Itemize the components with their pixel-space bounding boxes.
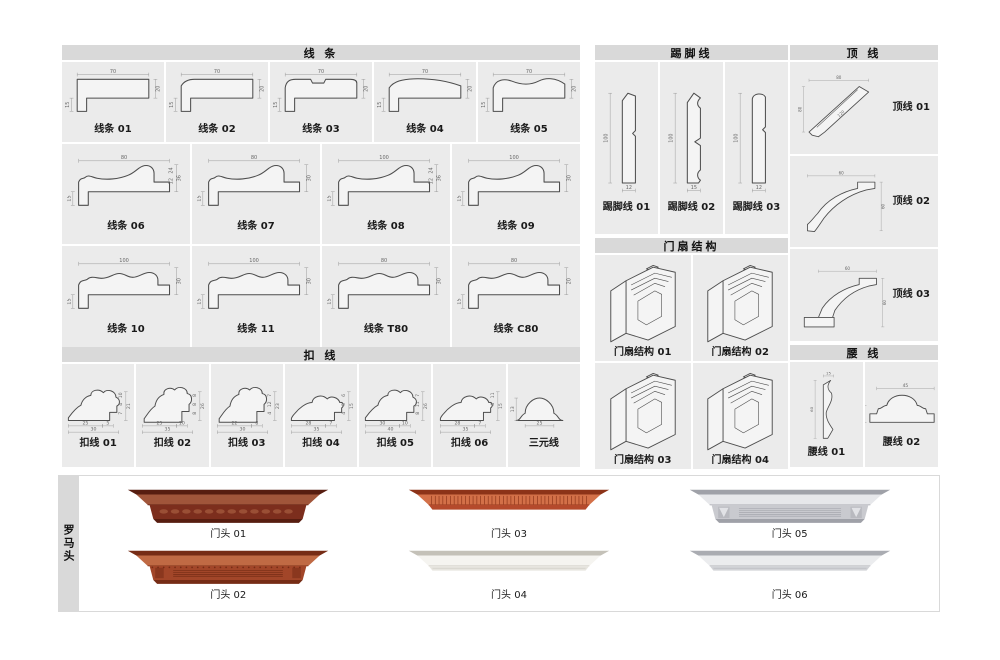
profile-drawing: 1003015 bbox=[197, 258, 315, 322]
door-head-photo bbox=[686, 485, 894, 528]
profile-label: 踢脚线 02 bbox=[668, 202, 715, 214]
bead-panel-3: 22830237124扣线 03 bbox=[211, 364, 283, 467]
svg-text:25: 25 bbox=[83, 420, 89, 426]
svg-text:15: 15 bbox=[497, 403, 503, 409]
svg-text:25: 25 bbox=[157, 420, 163, 426]
svg-text:7: 7 bbox=[118, 411, 124, 414]
svg-text:15: 15 bbox=[327, 195, 332, 201]
bead-panel-2: 25103526888扣线 02 bbox=[136, 364, 208, 467]
svg-text:8: 8 bbox=[255, 420, 258, 426]
svg-text:100: 100 bbox=[379, 155, 389, 161]
svg-text:70: 70 bbox=[214, 69, 220, 75]
section-title-skirting: 踢脚线 bbox=[595, 45, 788, 60]
profile-drawing: 10036152412 bbox=[327, 155, 445, 219]
door-head-label: 门头 02 bbox=[210, 590, 246, 602]
profile-label: 线条 10 bbox=[107, 324, 144, 336]
profile-drawing: 2873515654 bbox=[286, 381, 356, 437]
profile-drawing: 10012 bbox=[728, 82, 786, 200]
svg-text:20: 20 bbox=[567, 278, 573, 284]
svg-text:70: 70 bbox=[422, 69, 428, 75]
profile-label: 线条 08 bbox=[367, 221, 404, 233]
svg-text:30: 30 bbox=[91, 426, 97, 432]
svg-text:13: 13 bbox=[510, 406, 516, 412]
profile-drawing: 2873515114 bbox=[435, 381, 505, 437]
svg-text:60: 60 bbox=[808, 407, 813, 412]
door-head-figure-门头-06: 门头 06 bbox=[686, 546, 894, 602]
door-structure-drawing bbox=[701, 365, 779, 453]
svg-text:15: 15 bbox=[457, 298, 462, 304]
profile-label: 线条 C80 bbox=[494, 324, 539, 336]
profile-drawing: 1560 bbox=[801, 370, 853, 444]
svg-text:30: 30 bbox=[437, 278, 443, 284]
profile-label: 扣线 06 bbox=[451, 438, 488, 450]
svg-text:15: 15 bbox=[67, 298, 72, 304]
svg-text:35: 35 bbox=[165, 426, 171, 432]
section-waist: 腰 线 1560腰线 014520腰线 02 bbox=[790, 345, 938, 467]
profile-label: 线条 07 bbox=[237, 221, 274, 233]
skirting-panel-3: 10012踢脚线 03 bbox=[725, 62, 788, 234]
svg-text:45: 45 bbox=[902, 383, 908, 389]
svg-text:100: 100 bbox=[668, 134, 674, 143]
door-structure-drawing bbox=[701, 257, 779, 345]
profile-drawing: 10015 bbox=[663, 82, 721, 200]
svg-text:36: 36 bbox=[437, 175, 443, 181]
moulding-row-2: 8036152412线条 06803015线条 0710036152412线条 … bbox=[62, 144, 580, 244]
profile-label: 顶线 03 bbox=[893, 289, 930, 301]
section-roman-head: 罗马头 门头 01门头 02门头 03门头 04门头 05门头 06 bbox=[58, 475, 940, 612]
profile-drawing: 1003015 bbox=[457, 155, 575, 219]
profile-label: 线条 03 bbox=[302, 124, 339, 136]
svg-text:100: 100 bbox=[119, 258, 129, 264]
svg-text:60: 60 bbox=[839, 170, 845, 175]
moulding-panel-线条-T80: 803015线条 T80 bbox=[322, 246, 450, 348]
moulding-panel-线条-10: 1003015线条 10 bbox=[62, 246, 190, 348]
profile-drawing: 702015 bbox=[168, 68, 266, 123]
bead-panel-6: 2873515114扣线 06 bbox=[433, 364, 505, 467]
svg-text:7: 7 bbox=[478, 420, 481, 426]
waist-panel-2: 4520腰线 02 bbox=[865, 362, 938, 467]
profile-label: 腰线 02 bbox=[883, 437, 920, 449]
profile-drawing: 702015 bbox=[376, 68, 474, 123]
profile-label: 线条 01 bbox=[94, 124, 131, 136]
profile-label: 顶线 01 bbox=[893, 102, 930, 114]
crown-panel-2: 6060顶线 02 bbox=[790, 156, 938, 248]
svg-text:35: 35 bbox=[462, 426, 468, 432]
section-skirting: 踢脚线 10012踢脚线 0110015踢脚线 0210012踢脚线 03 bbox=[595, 45, 788, 234]
profile-drawing: 1325 bbox=[509, 381, 579, 437]
door-structure-grid: 门扇结构 01门扇结构 02门扇结构 03门扇结构 04 bbox=[595, 255, 788, 469]
svg-text:4: 4 bbox=[266, 411, 272, 414]
svg-text:12: 12 bbox=[755, 185, 761, 191]
door-head-figure-门头-03: 门头 03 bbox=[405, 485, 613, 541]
svg-text:10: 10 bbox=[402, 420, 408, 426]
svg-text:60: 60 bbox=[845, 266, 851, 271]
roman-head-content: 门头 01门头 02门头 03门头 04门头 05门头 06 bbox=[78, 475, 940, 612]
profile-drawing: 10012 bbox=[598, 82, 656, 200]
svg-text:15: 15 bbox=[197, 195, 202, 201]
door-head-label: 门头 04 bbox=[491, 590, 527, 602]
svg-text:28: 28 bbox=[454, 420, 460, 426]
profile-drawing: 702015 bbox=[272, 68, 370, 123]
svg-text:8: 8 bbox=[192, 394, 198, 397]
svg-text:10: 10 bbox=[118, 392, 124, 398]
profile-label: 线条 06 bbox=[107, 221, 144, 233]
bead-line-row: 25530211047扣线 0125103526888扣线 0222830237… bbox=[62, 364, 580, 467]
svg-text:15: 15 bbox=[327, 298, 332, 304]
svg-text:15: 15 bbox=[481, 101, 487, 107]
svg-text:80: 80 bbox=[251, 155, 257, 161]
door-structure-drawing bbox=[604, 257, 682, 345]
svg-text:80: 80 bbox=[836, 75, 842, 80]
svg-text:5: 5 bbox=[341, 402, 347, 405]
svg-text:80: 80 bbox=[511, 258, 517, 264]
svg-text:40: 40 bbox=[388, 426, 394, 432]
door-head-label: 门头 06 bbox=[772, 590, 808, 602]
profile-label: 踢脚线 01 bbox=[603, 202, 650, 214]
profile-label: 线条 11 bbox=[237, 324, 274, 336]
svg-text:24: 24 bbox=[168, 167, 174, 173]
profile-label: 线条 T80 bbox=[364, 324, 408, 336]
svg-text:23: 23 bbox=[274, 403, 280, 409]
catalog-page: 线 条 702015线条 01702015线条 02702015线条 03702… bbox=[0, 0, 1000, 660]
svg-text:30: 30 bbox=[307, 278, 313, 284]
profile-label: 线条 05 bbox=[510, 124, 547, 136]
svg-text:21: 21 bbox=[126, 403, 132, 409]
crown-panel-3: 6060顶线 03 bbox=[790, 249, 938, 341]
svg-text:15: 15 bbox=[65, 101, 71, 107]
door-head-figure-门头-01: 门头 01 bbox=[124, 485, 332, 541]
profile-label: 线条 02 bbox=[198, 124, 235, 136]
crown-column: 8080120顶线 016060顶线 026060顶线 03 bbox=[790, 62, 938, 341]
svg-text:30: 30 bbox=[239, 426, 245, 432]
svg-text:20: 20 bbox=[468, 85, 474, 91]
profile-label: 门扇结构 01 bbox=[614, 347, 671, 359]
skirting-panel-1: 10012踢脚线 01 bbox=[595, 62, 658, 234]
door-head-photo bbox=[405, 485, 613, 528]
profile-drawing: 802015 bbox=[457, 258, 575, 322]
moulding-panel-线条-02: 702015线条 02 bbox=[166, 62, 268, 142]
svg-text:7: 7 bbox=[415, 394, 421, 397]
svg-text:8: 8 bbox=[192, 411, 198, 414]
roman-head-column-2: 门头 03门头 04 bbox=[382, 480, 637, 607]
svg-text:80: 80 bbox=[798, 106, 802, 112]
profile-drawing: 1003015 bbox=[67, 258, 185, 322]
moulding-panel-线条-03: 702015线条 03 bbox=[270, 62, 372, 142]
profile-label: 门扇结构 02 bbox=[712, 347, 769, 359]
svg-text:7: 7 bbox=[266, 394, 272, 397]
svg-text:20: 20 bbox=[364, 85, 370, 91]
svg-text:70: 70 bbox=[526, 69, 532, 75]
section-title-door-structure: 门扇结构 bbox=[595, 238, 788, 253]
door-head-label: 门头 03 bbox=[491, 529, 527, 541]
profile-label: 门扇结构 04 bbox=[712, 455, 769, 467]
crown-panel-1: 8080120顶线 01 bbox=[790, 62, 938, 154]
skirting-row: 10012踢脚线 0110015踢脚线 0210012踢脚线 03 bbox=[595, 62, 788, 234]
door-head-label: 门头 01 bbox=[210, 529, 246, 541]
svg-text:24: 24 bbox=[428, 167, 434, 173]
section-title-mouldings: 线 条 bbox=[62, 45, 580, 60]
bead-panel-5: 301040267118扣线 05 bbox=[359, 364, 431, 467]
svg-text:15: 15 bbox=[273, 101, 279, 107]
section-title-crown: 顶 线 bbox=[790, 45, 938, 60]
section-crown: 顶 线 8080120顶线 016060顶线 026060顶线 03 bbox=[790, 45, 938, 341]
svg-text:11: 11 bbox=[415, 401, 421, 407]
svg-text:36: 36 bbox=[177, 175, 183, 181]
svg-text:70: 70 bbox=[318, 69, 324, 75]
door-head-figure-门头-02: 门头 02 bbox=[124, 546, 332, 602]
section-door-structure: 门扇结构 门扇结构 01门扇结构 02门扇结构 03门扇结构 04 bbox=[595, 238, 788, 469]
door-head-figure-门头-04: 门头 04 bbox=[405, 546, 613, 602]
moulding-panel-线条-07: 803015线条 07 bbox=[192, 144, 320, 244]
door-head-photo bbox=[686, 546, 894, 589]
svg-text:20: 20 bbox=[572, 85, 578, 91]
svg-text:60: 60 bbox=[882, 300, 887, 306]
profile-drawing: 6060 bbox=[798, 261, 891, 328]
svg-text:25: 25 bbox=[536, 420, 542, 426]
svg-text:8: 8 bbox=[192, 402, 198, 405]
moulding-panel-线条-09: 1003015线条 09 bbox=[452, 144, 580, 244]
svg-text:15: 15 bbox=[457, 195, 462, 201]
door-head-figure-门头-05: 门头 05 bbox=[686, 485, 894, 541]
svg-text:4: 4 bbox=[341, 411, 347, 414]
svg-text:4: 4 bbox=[118, 402, 124, 405]
svg-text:100: 100 bbox=[733, 134, 739, 143]
bead-panel-7: 1325三元线 bbox=[508, 364, 580, 467]
svg-text:30: 30 bbox=[380, 420, 386, 426]
svg-text:10: 10 bbox=[179, 420, 185, 426]
door-structure-panel-4: 门扇结构 04 bbox=[693, 363, 789, 469]
waist-row: 1560腰线 014520腰线 02 bbox=[790, 362, 938, 467]
svg-text:6: 6 bbox=[341, 394, 347, 397]
profile-drawing: 803015 bbox=[197, 155, 315, 219]
svg-text:100: 100 bbox=[249, 258, 259, 264]
door-structure-panel-2: 门扇结构 02 bbox=[693, 255, 789, 361]
moulding-panel-线条-06: 8036152412线条 06 bbox=[62, 144, 190, 244]
svg-text:70: 70 bbox=[110, 69, 116, 75]
svg-text:12: 12 bbox=[625, 185, 631, 191]
profile-label: 扣线 04 bbox=[302, 438, 339, 450]
profile-label: 线条 09 bbox=[497, 221, 534, 233]
skirting-panel-2: 10015踢脚线 02 bbox=[660, 62, 723, 234]
svg-text:80: 80 bbox=[121, 155, 127, 161]
svg-text:20: 20 bbox=[156, 85, 162, 91]
svg-text:35: 35 bbox=[314, 426, 320, 432]
svg-text:28: 28 bbox=[305, 420, 311, 426]
door-structure-drawing bbox=[604, 365, 682, 453]
door-head-photo bbox=[405, 546, 613, 589]
svg-text:15: 15 bbox=[197, 298, 202, 304]
profile-label: 扣线 01 bbox=[79, 438, 116, 450]
profile-drawing: 22830237124 bbox=[212, 381, 282, 437]
door-head-photo bbox=[124, 485, 332, 528]
moulding-panel-线条-11: 1003015线条 11 bbox=[192, 246, 320, 348]
svg-text:60: 60 bbox=[881, 203, 886, 209]
svg-text:15: 15 bbox=[690, 185, 696, 191]
svg-text:80: 80 bbox=[381, 258, 387, 264]
svg-text:15: 15 bbox=[349, 403, 355, 409]
section-title-bead-lines: 扣 线 bbox=[62, 347, 580, 362]
door-head-label: 门头 05 bbox=[772, 529, 808, 541]
bead-panel-4: 2873515654扣线 04 bbox=[285, 364, 357, 467]
svg-text:15: 15 bbox=[67, 195, 72, 201]
moulding-panel-线条-01: 702015线条 01 bbox=[62, 62, 164, 142]
profile-label: 腰线 01 bbox=[808, 447, 845, 459]
moulding-row-1: 702015线条 01702015线条 02702015线条 03702015线… bbox=[62, 62, 580, 142]
profile-label: 顶线 02 bbox=[893, 196, 930, 208]
svg-text:26: 26 bbox=[200, 403, 206, 409]
moulding-row-3: 1003015线条 101003015线条 11803015线条 T808020… bbox=[62, 246, 580, 348]
moulding-panel-线条-05: 702015线条 05 bbox=[478, 62, 580, 142]
svg-text:12: 12 bbox=[168, 178, 174, 184]
profile-label: 踢脚线 03 bbox=[733, 202, 780, 214]
svg-text:100: 100 bbox=[509, 155, 519, 161]
svg-text:7: 7 bbox=[329, 420, 332, 426]
svg-text:30: 30 bbox=[177, 278, 183, 284]
profile-drawing: 702015 bbox=[64, 68, 162, 123]
svg-text:11: 11 bbox=[489, 392, 495, 398]
profile-label: 门扇结构 03 bbox=[614, 455, 671, 467]
section-bead-lines: 扣 线 25530211047扣线 0125103526888扣线 022283… bbox=[62, 347, 580, 467]
svg-text:5: 5 bbox=[107, 420, 110, 426]
profile-drawing: 803015 bbox=[327, 258, 445, 322]
profile-label: 扣线 05 bbox=[377, 438, 414, 450]
svg-text:12: 12 bbox=[428, 178, 434, 184]
svg-text:30: 30 bbox=[567, 175, 573, 181]
svg-text:26: 26 bbox=[423, 403, 429, 409]
profile-drawing: 25103526888 bbox=[137, 381, 207, 437]
svg-text:8: 8 bbox=[415, 411, 421, 414]
profile-label: 三元线 bbox=[529, 438, 559, 450]
section-mouldings: 线 条 702015线条 01702015线条 02702015线条 03702… bbox=[62, 45, 580, 348]
waist-panel-1: 1560腰线 01 bbox=[790, 362, 863, 467]
svg-text:4: 4 bbox=[489, 402, 495, 405]
moulding-panel-线条-C80: 802015线条 C80 bbox=[452, 246, 580, 348]
profile-drawing: 4520 bbox=[865, 380, 938, 434]
svg-text:15: 15 bbox=[377, 101, 383, 107]
svg-text:22: 22 bbox=[231, 420, 237, 426]
profile-drawing: 301040267118 bbox=[360, 381, 430, 437]
profile-label: 扣线 03 bbox=[228, 438, 265, 450]
door-structure-panel-1: 门扇结构 01 bbox=[595, 255, 691, 361]
profile-drawing: 702015 bbox=[480, 68, 578, 123]
profile-label: 线条 04 bbox=[406, 124, 443, 136]
profile-label: 扣线 02 bbox=[154, 438, 191, 450]
svg-text:15: 15 bbox=[169, 101, 175, 107]
moulding-panel-线条-04: 702015线条 04 bbox=[374, 62, 476, 142]
profile-drawing: 8036152412 bbox=[67, 155, 185, 219]
svg-text:30: 30 bbox=[307, 175, 313, 181]
section-title-waist: 腰 线 bbox=[790, 345, 938, 360]
svg-text:12: 12 bbox=[266, 401, 272, 407]
svg-text:100: 100 bbox=[603, 134, 609, 143]
profile-drawing: 6060 bbox=[798, 168, 891, 235]
roman-head-sidebar-label: 罗马头 bbox=[58, 475, 78, 612]
svg-text:20: 20 bbox=[260, 85, 266, 91]
door-structure-panel-3: 门扇结构 03 bbox=[595, 363, 691, 469]
profile-drawing: 8080120 bbox=[798, 74, 891, 141]
svg-text:15: 15 bbox=[826, 371, 831, 376]
door-head-photo bbox=[124, 546, 332, 589]
bead-panel-1: 25530211047扣线 01 bbox=[62, 364, 134, 467]
moulding-panel-线条-08: 10036152412线条 08 bbox=[322, 144, 450, 244]
roman-head-column-3: 门头 05门头 06 bbox=[662, 480, 917, 607]
profile-drawing: 25530211047 bbox=[63, 381, 133, 437]
roman-head-column-1: 门头 01门头 02 bbox=[101, 480, 356, 607]
